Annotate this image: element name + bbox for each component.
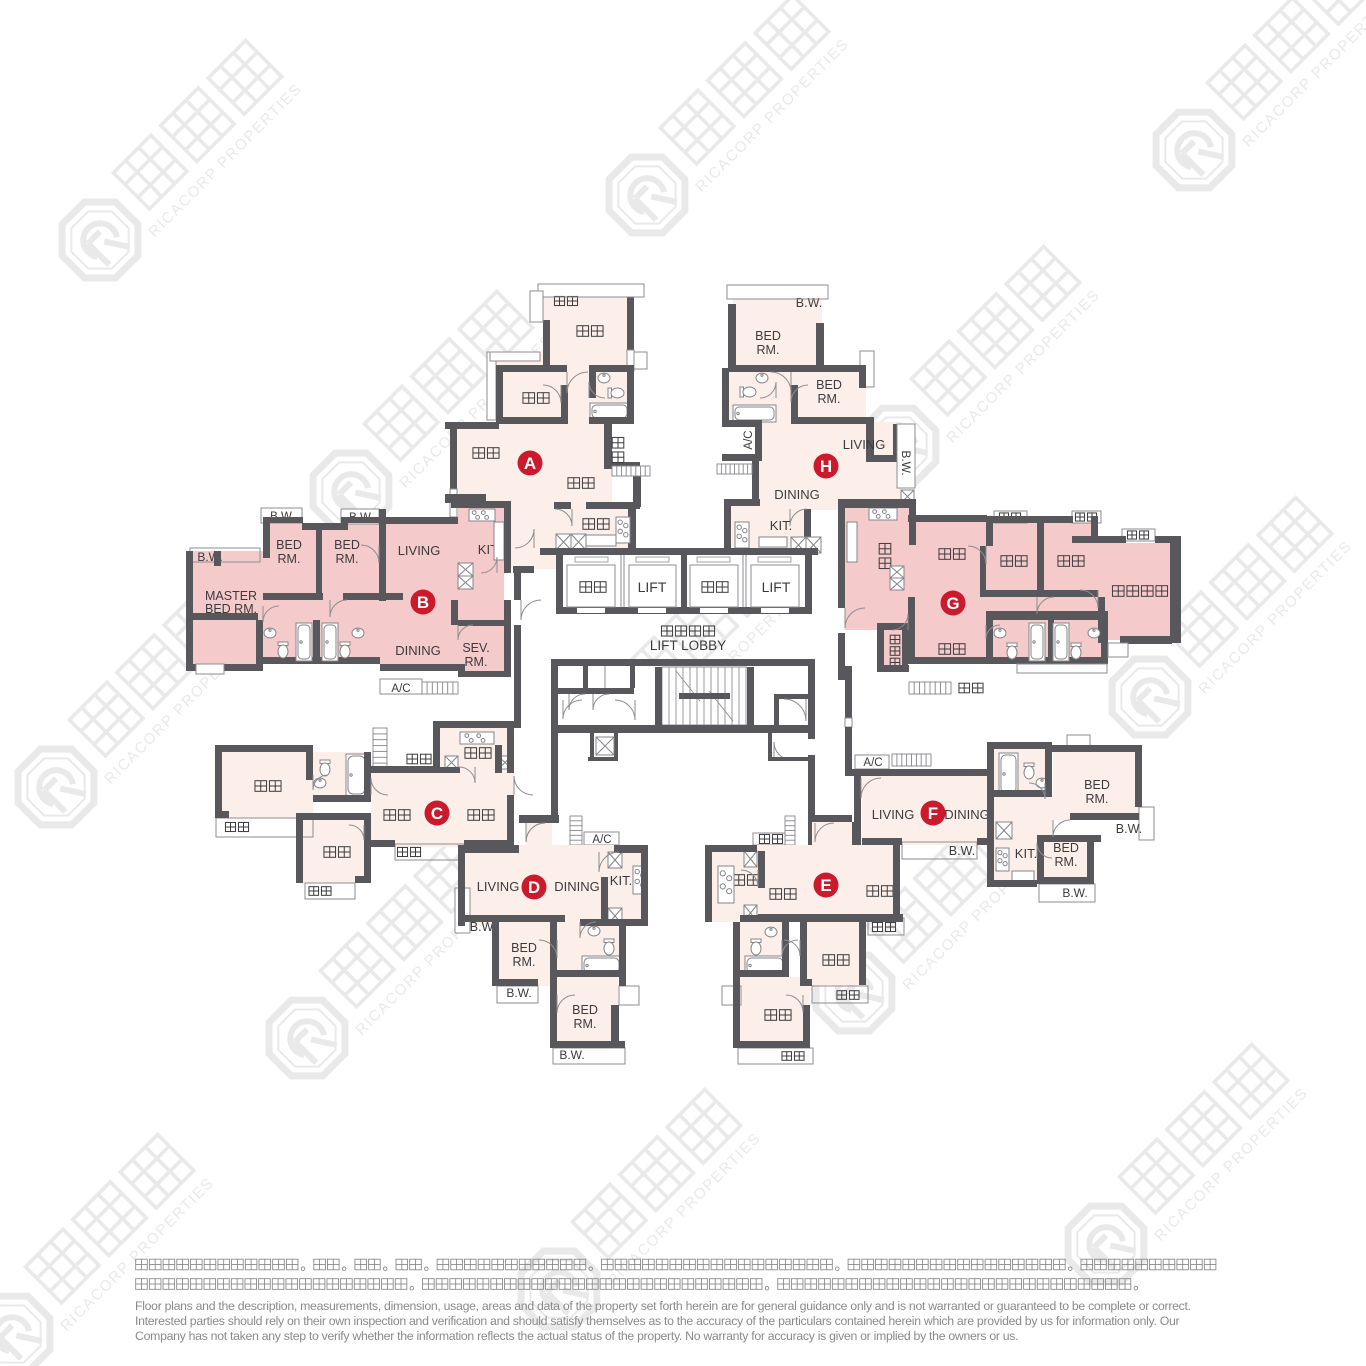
svg-text:DINING: DINING bbox=[554, 879, 600, 894]
svg-text:BED: BED bbox=[1084, 778, 1110, 792]
svg-text:LIFT: LIFT bbox=[762, 579, 791, 595]
svg-text:RICACORP PROPERTIES: RICACORP PROPERTIES bbox=[692, 35, 852, 195]
svg-text:SEV.: SEV. bbox=[462, 641, 489, 655]
svg-text:RM.: RM. bbox=[465, 655, 488, 669]
svg-text:RM.: RM. bbox=[1086, 792, 1109, 806]
svg-text:RM.: RM. bbox=[278, 552, 301, 566]
svg-text:B.W.: B.W. bbox=[559, 1048, 584, 1062]
svg-text:LIFT: LIFT bbox=[638, 579, 667, 595]
svg-text:B.W.: B.W. bbox=[796, 296, 822, 310]
svg-text:RM.: RM. bbox=[757, 343, 780, 357]
svg-text:BED: BED bbox=[572, 1003, 598, 1017]
svg-text:BED: BED bbox=[334, 538, 360, 552]
svg-text:A/C: A/C bbox=[743, 430, 755, 449]
svg-text:B.W.: B.W. bbox=[1116, 822, 1142, 836]
svg-text:RICACORP PROPERTIES: RICACORP PROPERTIES bbox=[1195, 537, 1355, 697]
svg-text:BED: BED bbox=[1053, 841, 1079, 855]
svg-text:RICACORP PROPERTIES: RICACORP PROPERTIES bbox=[1239, 0, 1366, 151]
svg-text:BED: BED bbox=[276, 538, 302, 552]
svg-text:RICACORP PROPERTIES: RICACORP PROPERTIES bbox=[604, 1129, 764, 1289]
svg-text:MASTER: MASTER bbox=[205, 589, 257, 603]
svg-text:A/C: A/C bbox=[863, 757, 882, 769]
svg-text:E: E bbox=[820, 876, 831, 895]
svg-text:B.W.: B.W. bbox=[506, 986, 531, 1000]
svg-text:Interested parties should rely: Interested parties should rely on their … bbox=[135, 1314, 1180, 1328]
svg-text:BED: BED bbox=[816, 378, 842, 392]
svg-text:Floor plans and the descriptio: Floor plans and the description, measure… bbox=[135, 1299, 1191, 1313]
svg-text:A: A bbox=[524, 454, 536, 473]
svg-text:C: C bbox=[431, 804, 443, 823]
svg-text:LIVING: LIVING bbox=[398, 543, 441, 558]
svg-text:RM.: RM. bbox=[513, 955, 536, 969]
svg-text:LIVING: LIVING bbox=[477, 879, 520, 894]
svg-text:B.W.: B.W. bbox=[949, 844, 975, 858]
svg-text:LIFT LOBBY: LIFT LOBBY bbox=[650, 638, 726, 653]
svg-text:LIVING: LIVING bbox=[872, 807, 915, 822]
svg-text:H: H bbox=[820, 457, 832, 476]
svg-text:Company has not taken any step: Company has not taken any step to verify… bbox=[135, 1329, 1018, 1343]
svg-text:RM.: RM. bbox=[1055, 855, 1078, 869]
svg-text:BED: BED bbox=[511, 941, 537, 955]
svg-text:RM.: RM. bbox=[336, 552, 359, 566]
svg-text:A/C: A/C bbox=[391, 683, 410, 695]
svg-text:LIVING: LIVING bbox=[843, 437, 886, 452]
svg-text:G: G bbox=[946, 594, 959, 613]
svg-text:B.W.: B.W. bbox=[1062, 886, 1087, 900]
svg-text:RM.: RM. bbox=[574, 1017, 597, 1031]
svg-text:DINING: DINING bbox=[395, 643, 441, 658]
svg-text:KIT.: KIT. bbox=[770, 518, 792, 533]
svg-text:B: B bbox=[417, 593, 429, 612]
svg-text:KIT.: KIT. bbox=[610, 873, 632, 888]
svg-text:KIT.: KIT. bbox=[1015, 846, 1037, 861]
svg-text:RM.: RM. bbox=[818, 392, 841, 406]
svg-text:B.W.: B.W. bbox=[899, 450, 913, 475]
svg-text:D: D bbox=[528, 878, 540, 897]
svg-text:RICACORP PROPERTIES: RICACORP PROPERTIES bbox=[943, 286, 1103, 446]
svg-text:DINING: DINING bbox=[774, 487, 820, 502]
svg-text:RICACORP PROPERTIES: RICACORP PROPERTIES bbox=[145, 80, 305, 240]
svg-text:DINING: DINING bbox=[944, 807, 990, 822]
svg-text:BED: BED bbox=[755, 329, 781, 343]
svg-text:A/C: A/C bbox=[592, 834, 611, 846]
svg-text:F: F bbox=[928, 804, 938, 823]
svg-text:RICACORP PROPERTIES: RICACORP PROPERTIES bbox=[1151, 1084, 1311, 1244]
